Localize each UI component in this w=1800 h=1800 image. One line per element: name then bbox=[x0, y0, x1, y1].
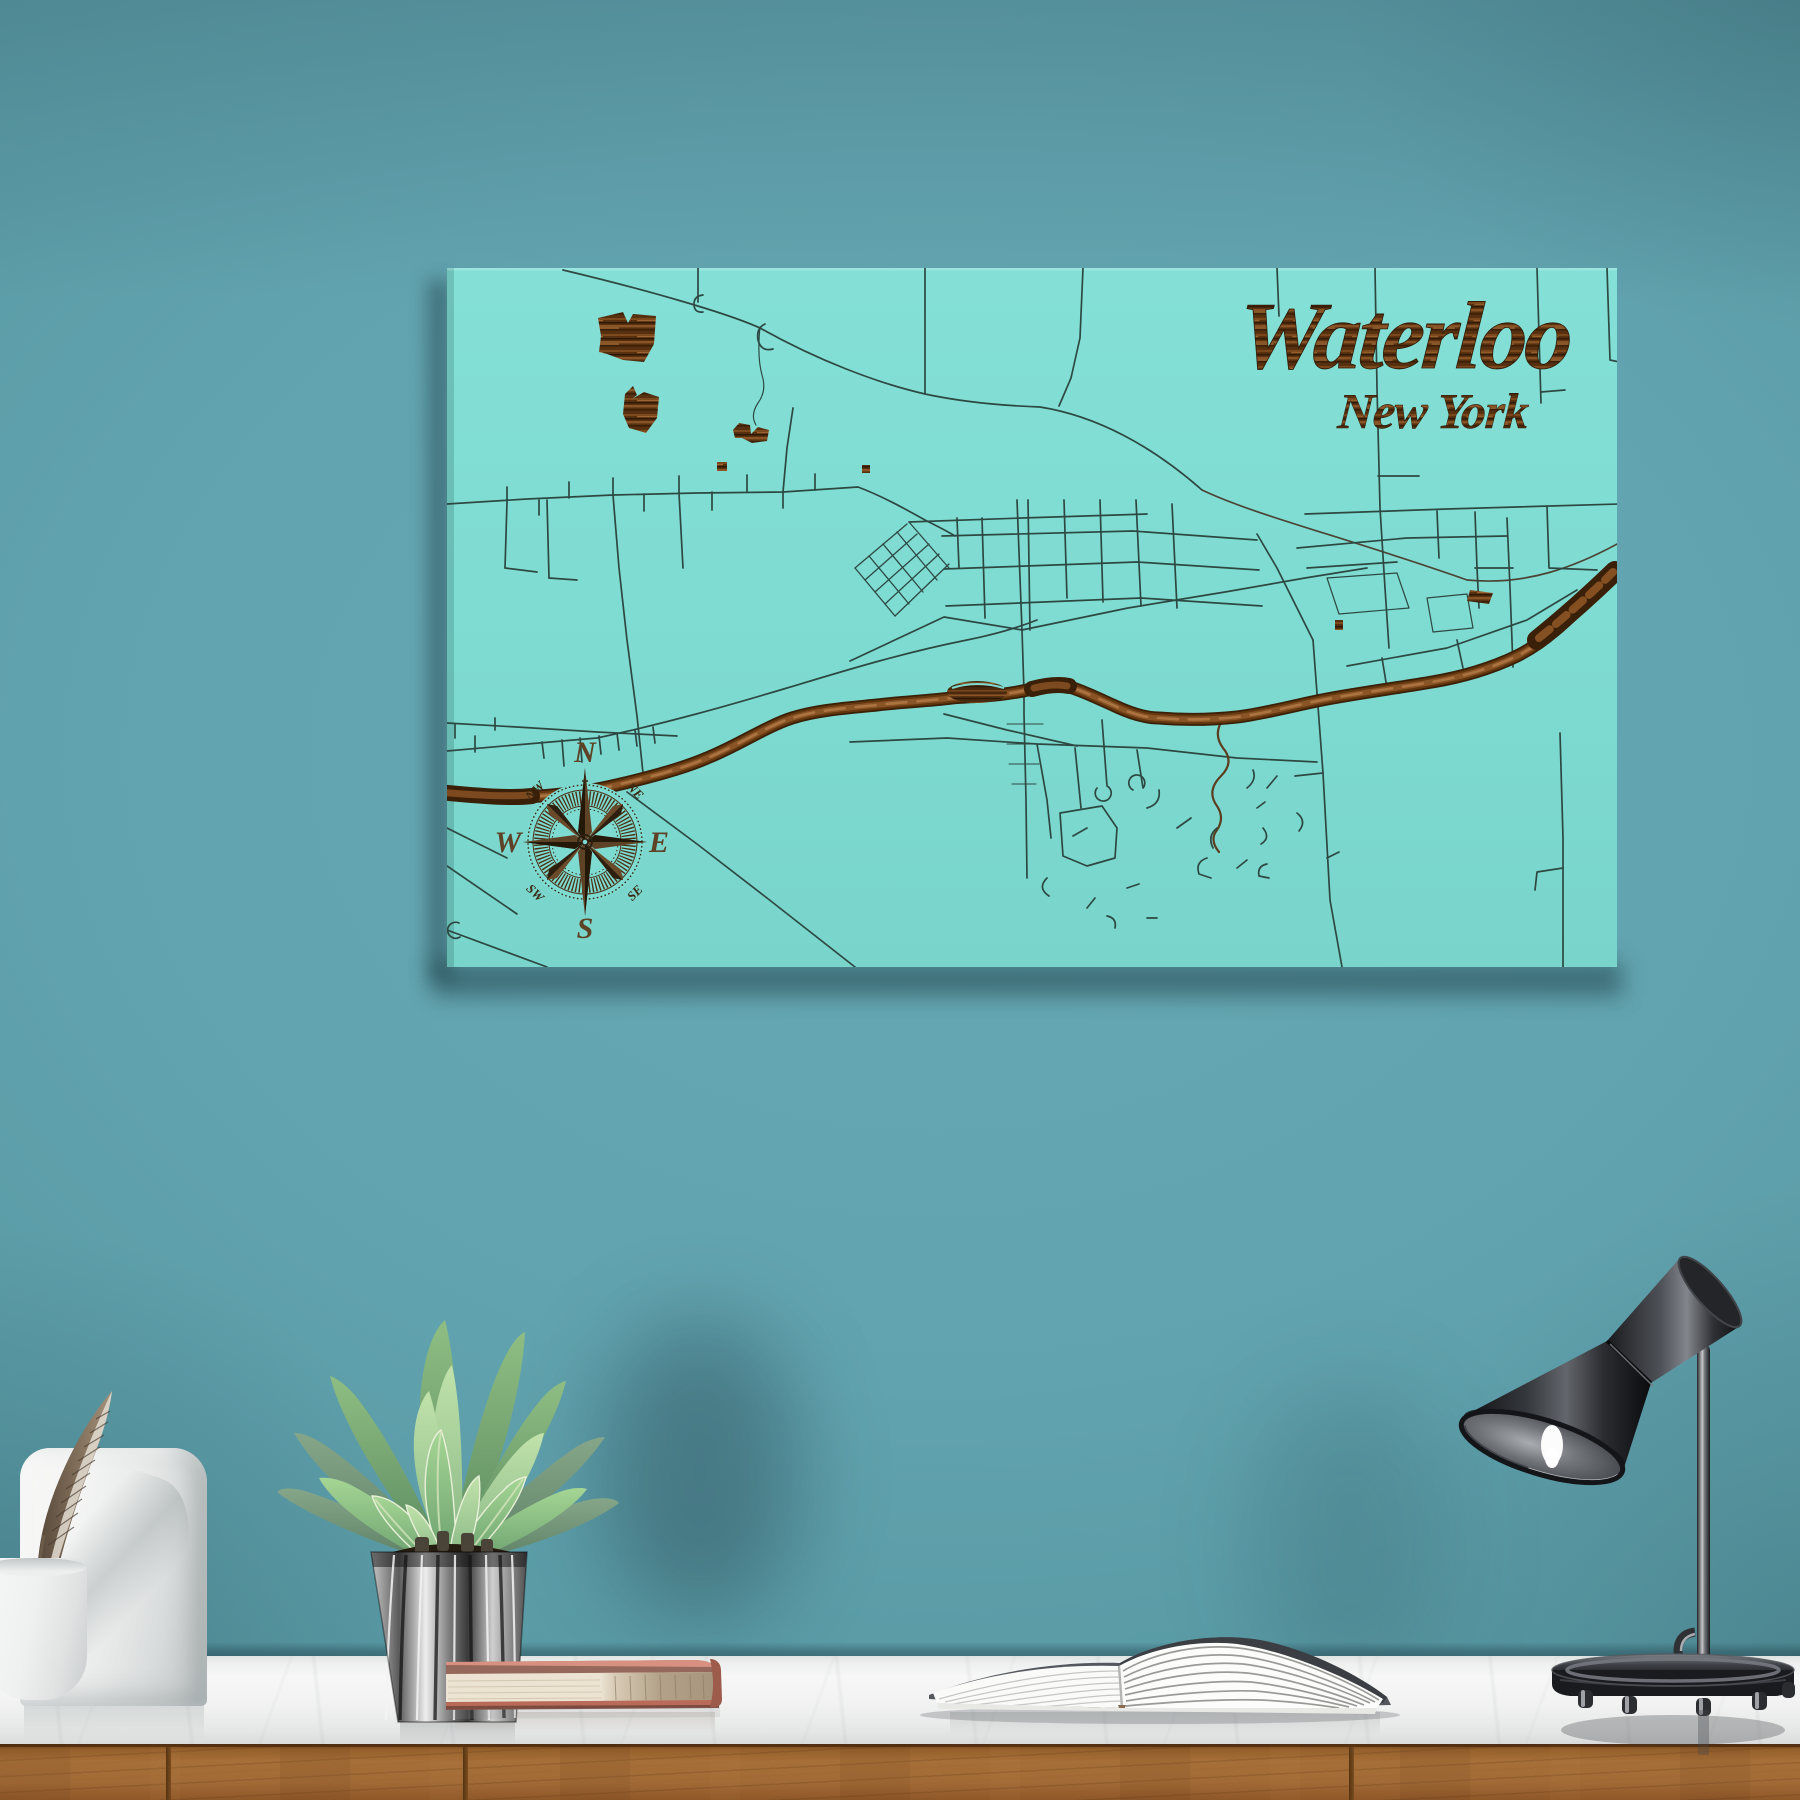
svg-text:W: W bbox=[495, 826, 524, 859]
svg-text:S: S bbox=[577, 912, 594, 945]
svg-text:N: N bbox=[573, 736, 597, 769]
svg-text:E: E bbox=[648, 826, 669, 859]
svg-text:Waterloo: Waterloo bbox=[1235, 282, 1574, 389]
svg-text:New York: New York bbox=[1335, 383, 1531, 439]
